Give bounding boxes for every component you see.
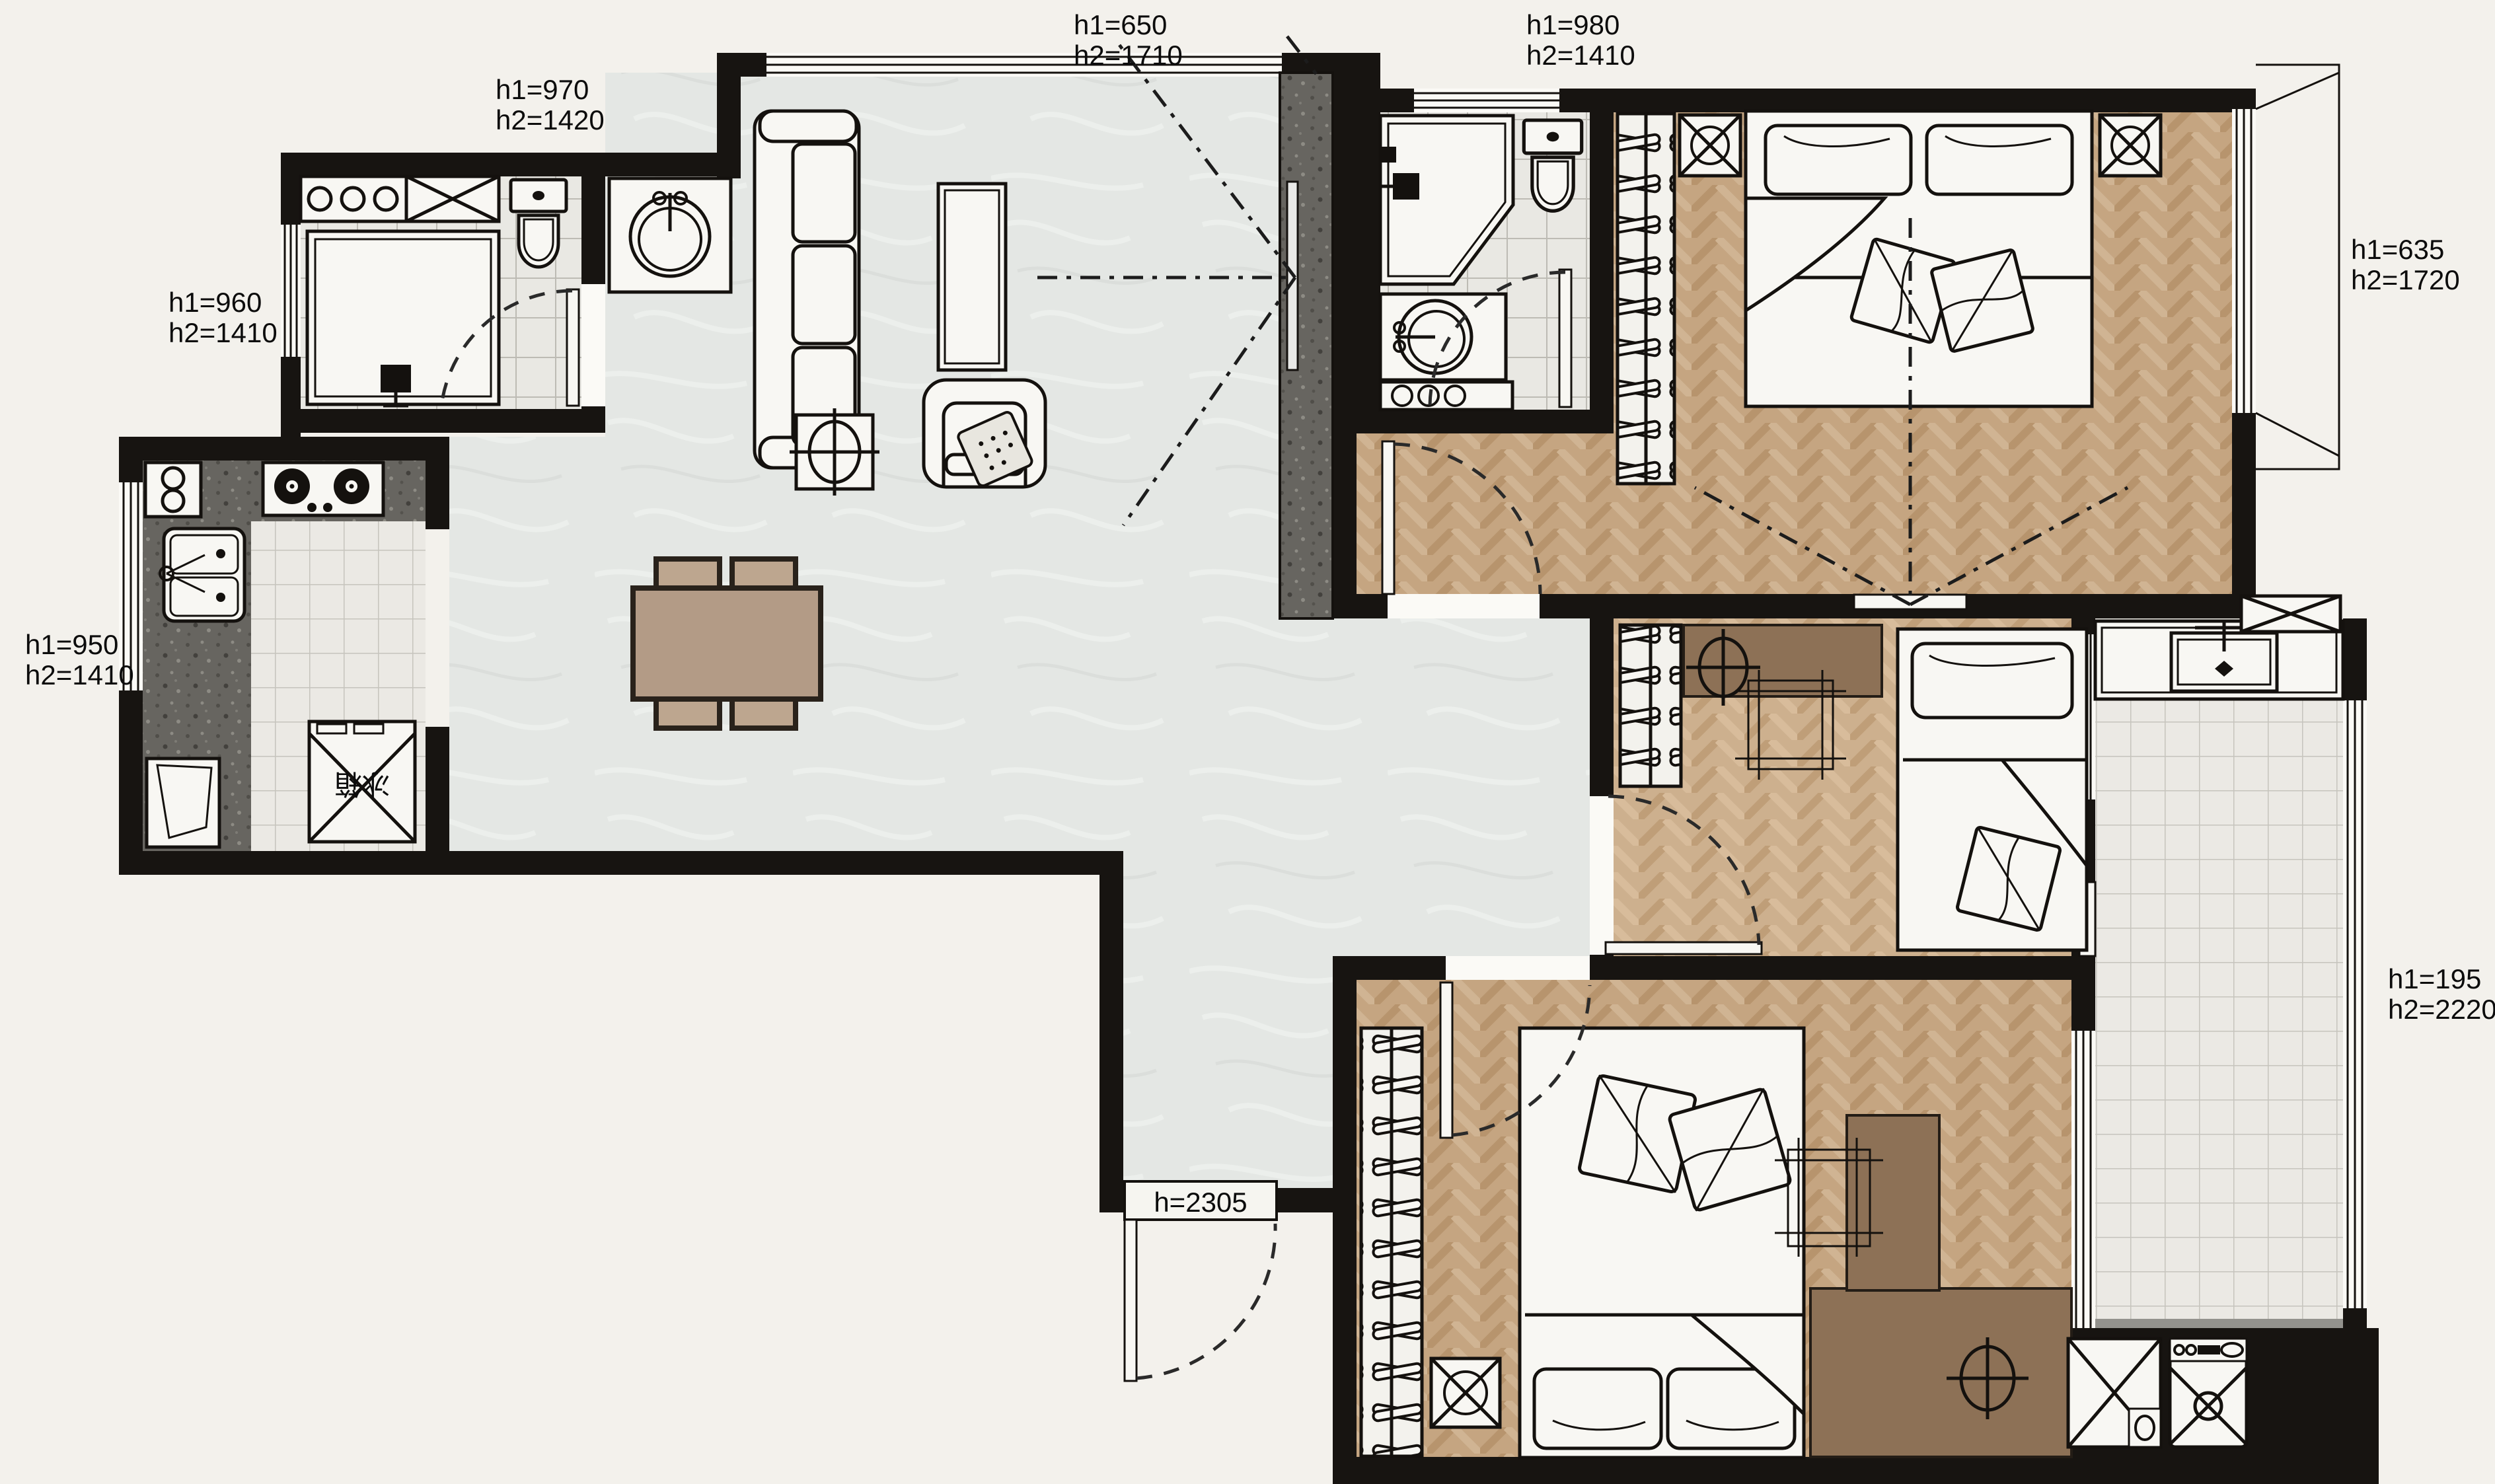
balcony-sill <box>2095 1319 2343 1329</box>
coffee-table-icon <box>938 184 1006 370</box>
balcony-right-window <box>2343 700 2367 1308</box>
armchair-icon <box>924 380 1045 488</box>
bottom-bedroom-balcony-window <box>2071 1031 2095 1328</box>
washing-machine-icon <box>2170 1339 2247 1447</box>
label-master-window-h1: h1=635 <box>2351 234 2444 265</box>
fridge-icon: 冰箱 <box>309 722 415 842</box>
bottom-bed-icon <box>1520 1028 1804 1458</box>
toilet-ensuite-icon <box>1524 120 1581 211</box>
label-balcony-window-h1: h1=195 <box>2388 963 2481 994</box>
balcony-storage-cabinet-icon <box>2068 1339 2161 1447</box>
cooktop-icon <box>263 463 383 515</box>
bath-storage-counter-icon <box>301 176 406 221</box>
label-balcony-window-h2: h2=2220 <box>2388 994 2495 1025</box>
vanity-nook <box>609 178 731 292</box>
label-living-window-h2: h2=1710 <box>1074 40 1183 71</box>
entry-door: h=2305 <box>1123 1181 1277 1381</box>
dining-table-icon <box>633 588 821 699</box>
middle-wardrobe-icon <box>1620 625 1681 786</box>
side-table-plant-icon <box>790 408 879 496</box>
label-bath1-side-window-h2: h2=1410 <box>168 317 278 348</box>
middle-desk-icon <box>1684 625 1882 696</box>
master-door-opening <box>1388 594 1540 618</box>
master-wardrobe-icon <box>1618 114 1674 484</box>
label-bath1-side-window-h1: h1=960 <box>168 287 262 318</box>
ensuite-vanity-icon <box>1380 294 1506 380</box>
kitchen-sink-icon <box>160 529 244 621</box>
bottom-counter-icon <box>1810 1288 2071 1457</box>
nightstand-right-icon <box>2100 115 2161 176</box>
kitchen-bin-icon <box>147 759 219 847</box>
bottom-bedroom-door-opening <box>1446 956 1590 980</box>
label-bath1-top-window-h2: h2=1420 <box>496 104 605 135</box>
label-kitchen-window-h2: h2=1410 <box>25 659 134 690</box>
single-bed-icon <box>1898 629 2087 950</box>
label-bath2-window-h2: h2=1410 <box>1526 40 1635 71</box>
bathroom-main-door-opening <box>581 284 605 406</box>
floor-plan-canvas: 冰箱 <box>0 0 2495 1484</box>
label-master-window-h2: h2=1720 <box>2351 264 2460 295</box>
nightstand-left-icon <box>1680 115 1740 176</box>
master-window-bay <box>2256 65 2339 469</box>
floor-plan-drawing: 冰箱 <box>0 0 2495 1484</box>
kitchen-small-appliance-icon <box>145 463 201 517</box>
master-tv-icon <box>1854 595 1966 609</box>
shower-tray-icon <box>307 231 499 406</box>
middle-bedroom-door-opening <box>1590 796 1614 955</box>
label-bath1-top-window-h1: h1=970 <box>496 74 589 105</box>
bottom-wardrobe-icon <box>1361 1028 1422 1456</box>
tv-feature-wall <box>1280 73 1333 618</box>
living-top-window <box>766 53 1282 77</box>
toilet-main-icon <box>511 180 566 267</box>
bath-cabinet-icon <box>406 176 499 221</box>
master-right-window <box>2232 109 2256 413</box>
bathroom-ensuite-top-window <box>1414 89 1559 112</box>
label-living-window-h1: h1=650 <box>1074 9 1167 40</box>
bottom-desk-icon <box>1847 1115 1939 1290</box>
bathroom-main-side-window <box>281 225 301 357</box>
balcony-floor <box>2095 700 2343 1321</box>
balcony-wall-cabinet-icon <box>2241 596 2340 632</box>
label-kitchen-window-h1: h1=950 <box>25 629 118 660</box>
master-bed-icon <box>1746 111 2092 406</box>
entry-door-label: h=2305 <box>1154 1187 1247 1218</box>
label-bath2-window-h1: h1=980 <box>1526 9 1620 40</box>
bottom-nightstand-icon <box>1431 1358 1500 1427</box>
ensuite-storage-strip-icon <box>1380 382 1512 410</box>
fridge-label: 冰箱 <box>334 768 390 799</box>
